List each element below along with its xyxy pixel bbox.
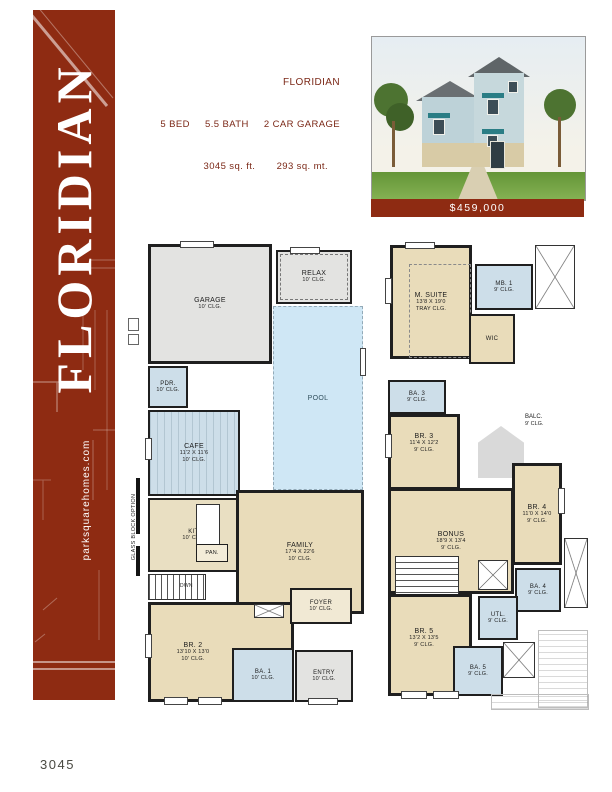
room-dims: 13'10 X 13'0 <box>177 649 210 656</box>
banner-title: FLORIDIAN <box>45 53 103 403</box>
room-bath1: BA. 1 10' CLG. <box>232 648 294 702</box>
room-name: GARAGE <box>194 297 226 304</box>
room-clg: 10' CLG. <box>288 556 311 563</box>
balcony-label: BALC. 9' CLG. <box>525 414 543 428</box>
room-clg: 10' CLG. <box>181 656 204 663</box>
website-link[interactable]: parksquarehomes.com <box>81 435 95 565</box>
linen-closets <box>564 538 588 608</box>
room-clg: TRAY CLG. <box>416 306 446 313</box>
room-clg: 9' CLG. <box>468 671 488 678</box>
shower-tile <box>478 560 508 590</box>
room-clg: 10' CLG. <box>182 457 205 464</box>
brochure-page: FLORIDIAN parksquarehomes.com FLORIDIAN … <box>0 0 612 792</box>
room-bath3: BA. 3 9' CLG. <box>388 380 446 414</box>
room-bath5: BA. 5 9' CLG. <box>453 646 503 696</box>
window-marker <box>290 247 320 254</box>
room-dims: 17'4 X 22'6 <box>285 549 314 556</box>
room-name: POOL <box>308 395 329 402</box>
room-utility: UTL. 9' CLG. <box>478 596 518 640</box>
room-name: BR. 3 <box>414 433 433 440</box>
room-dims: 11'0 X 14'0 <box>523 511 552 518</box>
room-name: CAFE <box>184 443 204 450</box>
room-clg: 9' CLG. <box>414 642 434 649</box>
room-relax: RELAX 10' CLG. <box>276 250 352 304</box>
awning <box>482 93 504 98</box>
first-floor-plan: GARAGE 10' CLG. RELAX 10' CLG. POOL PDR.… <box>140 238 366 714</box>
window <box>487 99 499 115</box>
side-banner: FLORIDIAN parksquarehomes.com <box>33 10 115 700</box>
room-name: BR. 4 <box>527 504 546 511</box>
room-pantry: PAN. <box>196 544 228 562</box>
room-clg: 9' CLG. <box>494 287 514 294</box>
room-clg: 9' CLG. <box>527 518 547 525</box>
room-name: M. SUITE <box>415 292 448 299</box>
room-dims: 11'4 X 12'2 <box>410 440 439 447</box>
window-marker <box>198 697 222 705</box>
room-powder: PDR. 10' CLG. <box>148 366 188 408</box>
front-door <box>490 141 505 169</box>
room-master-suite: M. SUITE 13'8 X 19'0 TRAY CLG. <box>390 245 472 359</box>
kitchen-island <box>196 504 220 546</box>
room-clg: 10' CLG. <box>251 675 274 682</box>
stone-base <box>422 143 524 167</box>
room-cafe: CAFE 11'2 X 11'6 10' CLG. <box>148 410 240 496</box>
equipment-pad <box>128 318 139 331</box>
window-marker <box>145 438 152 460</box>
room-dims: 13'2 X 13'5 <box>409 635 438 642</box>
awning <box>428 113 450 118</box>
room-name: RELAX <box>302 270 326 277</box>
room-bath4: BA. 4 9' CLG. <box>515 568 561 612</box>
room-clg: 10' CLG. <box>302 277 325 284</box>
equipment-pad <box>128 334 139 345</box>
room-master-bath: MB. 1 9' CLG. <box>475 264 533 310</box>
window <box>433 119 445 135</box>
room-clg: 9' CLG. <box>488 618 508 625</box>
room-garage: GARAGE 10' CLG. <box>148 244 272 364</box>
stairs-down <box>148 574 206 600</box>
room-clg: 9' CLG. <box>525 421 543 428</box>
bed-bath-line: 5 BED 5.5 BATH 2 CAR GARAGE <box>128 118 340 132</box>
room-entry: ENTRY 10' CLG. <box>295 650 353 702</box>
room-clg: 10' CLG. <box>156 387 179 394</box>
room-clg: 9' CLG. <box>441 545 461 552</box>
tree-trunk-left <box>392 121 395 167</box>
window-marker <box>385 434 392 458</box>
window-marker <box>433 691 459 699</box>
window-marker <box>401 691 427 699</box>
room-name: BALC. <box>525 414 543 421</box>
room-dims: 18'9 X 13'4 <box>436 538 465 545</box>
room-walk-in-closet: WIC <box>469 314 515 364</box>
room-dims: 13'8 X 19'0 <box>416 299 445 306</box>
window <box>508 81 518 93</box>
room-foyer: FOYER 10' CLG. <box>290 588 352 624</box>
roof-below-outline <box>491 694 589 710</box>
window-marker <box>360 348 366 376</box>
room-dims: 11'2 X 11'6 <box>180 450 209 457</box>
room-clg: 9' CLG. <box>528 590 548 597</box>
window-marker <box>180 241 214 248</box>
room-name: PAN. <box>205 550 218 557</box>
sqft-line: 3045 sq. ft. 293 sq. mt. <box>128 160 340 174</box>
room-clg: 9' CLG. <box>414 447 434 454</box>
tree-left-2 <box>386 103 414 131</box>
room-clg: 10' CLG. <box>309 606 332 613</box>
window-marker <box>405 242 435 249</box>
price-banner: $459,000 <box>371 199 584 217</box>
room-clg: 9' CLG. <box>407 397 427 404</box>
stairs-label: DWN <box>180 583 193 589</box>
model-title: FLORIDIAN <box>128 76 340 90</box>
room-bedroom4: BR. 4 11'0 X 14'0 9' CLG. <box>512 463 562 565</box>
window-marker <box>308 698 338 705</box>
house-photo <box>371 36 586 201</box>
wall-segment <box>136 478 140 534</box>
room-name: BR. 2 <box>183 642 202 649</box>
room-name: WIC <box>486 336 499 342</box>
room-clg: 10' CLG. <box>198 304 221 311</box>
room-clg: 10' CLG. <box>312 676 335 683</box>
room-pool: POOL <box>273 306 363 490</box>
shower-tile <box>503 642 535 678</box>
second-floor-plan: M. SUITE 13'8 X 19'0 TRAY CLG. MB. 1 9' … <box>383 238 592 714</box>
window-marker <box>164 697 188 705</box>
window-marker <box>385 278 392 304</box>
window-marker <box>145 634 152 658</box>
plan-number: 3045 <box>40 757 75 772</box>
wall-segment <box>136 546 140 576</box>
shower-closet <box>535 245 575 309</box>
tree-trunk-right <box>558 117 561 167</box>
room-name: BONUS <box>438 531 464 538</box>
header-specs: FLORIDIAN 5 BED 5.5 BATH 2 CAR GARAGE 30… <box>128 48 340 202</box>
room-name: BR. 5 <box>414 628 433 635</box>
room-name: FAMILY <box>287 542 313 549</box>
room-bedroom3: BR. 3 11'4 X 12'2 9' CLG. <box>388 414 460 490</box>
mech-closet <box>254 604 284 618</box>
awning <box>482 129 504 134</box>
window-marker <box>558 488 565 514</box>
